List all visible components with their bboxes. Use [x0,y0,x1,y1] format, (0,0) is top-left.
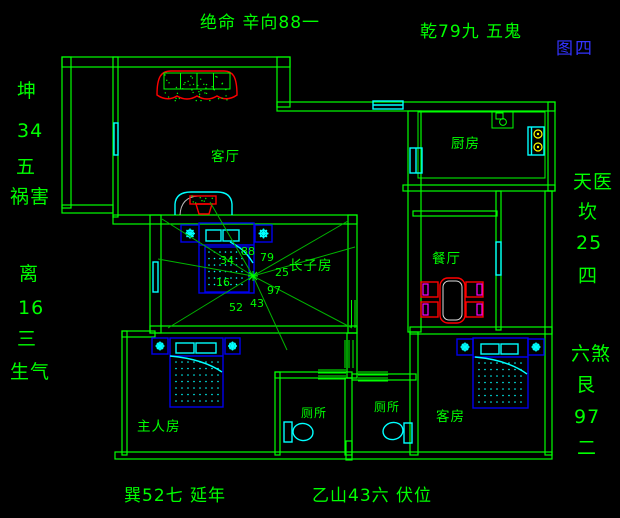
label-bottom-left: 巽52七 延年 [124,486,226,506]
compass-79: 79 [260,251,274,264]
figure-tag: 图四 [556,39,594,59]
label-bottom-center: 乙山43六 伏位 [312,486,432,506]
room-toilet1: 厕所 [301,406,327,420]
room-dining: 餐厅 [432,251,461,267]
label-shengqi: 生气 [10,361,50,383]
floorplan-canvas: 绝命 辛向88一 乾79九 五鬼 图四 坤 34 五 祸害 离 16 三 生气 … [0,0,620,518]
label-huohai: 祸害 [10,186,50,208]
label-top-right: 乾79九 五鬼 [420,22,522,42]
room-master: 主人房 [137,419,181,435]
compass-25: 25 [275,266,289,279]
compass-34: 34 [220,254,234,267]
compass-16: 16 [216,276,230,289]
compass-88: 88 [241,245,255,258]
label-wu: 五 [16,156,36,178]
room-kitchen: 厨房 [451,136,480,152]
label-san: 三 [17,328,37,350]
label-kun: 坤 [17,80,37,102]
label-er: 二 [577,437,597,459]
compass-52: 52 [229,301,243,314]
room-eldest: 长子房 [289,258,333,274]
compass-center [248,271,258,281]
label-34: 34 [17,120,43,142]
label-gen: 艮 [576,374,596,396]
label-top-center: 绝命 辛向88一 [200,13,320,33]
label-si: 四 [578,265,598,287]
room-toilet2: 厕所 [374,400,400,414]
label-li: 离 [19,263,39,285]
compass-97: 97 [267,284,281,297]
label-25: 25 [576,232,602,254]
label-liusha: 六煞 [571,343,611,365]
label-16: 16 [18,297,44,319]
label-kan: 坎 [578,201,598,223]
room-guest: 客房 [436,408,465,425]
room-living: 客厅 [211,148,240,165]
label-97: 97 [574,406,600,428]
compass-43: 43 [250,297,264,310]
label-tianyi: 天医 [573,171,613,193]
